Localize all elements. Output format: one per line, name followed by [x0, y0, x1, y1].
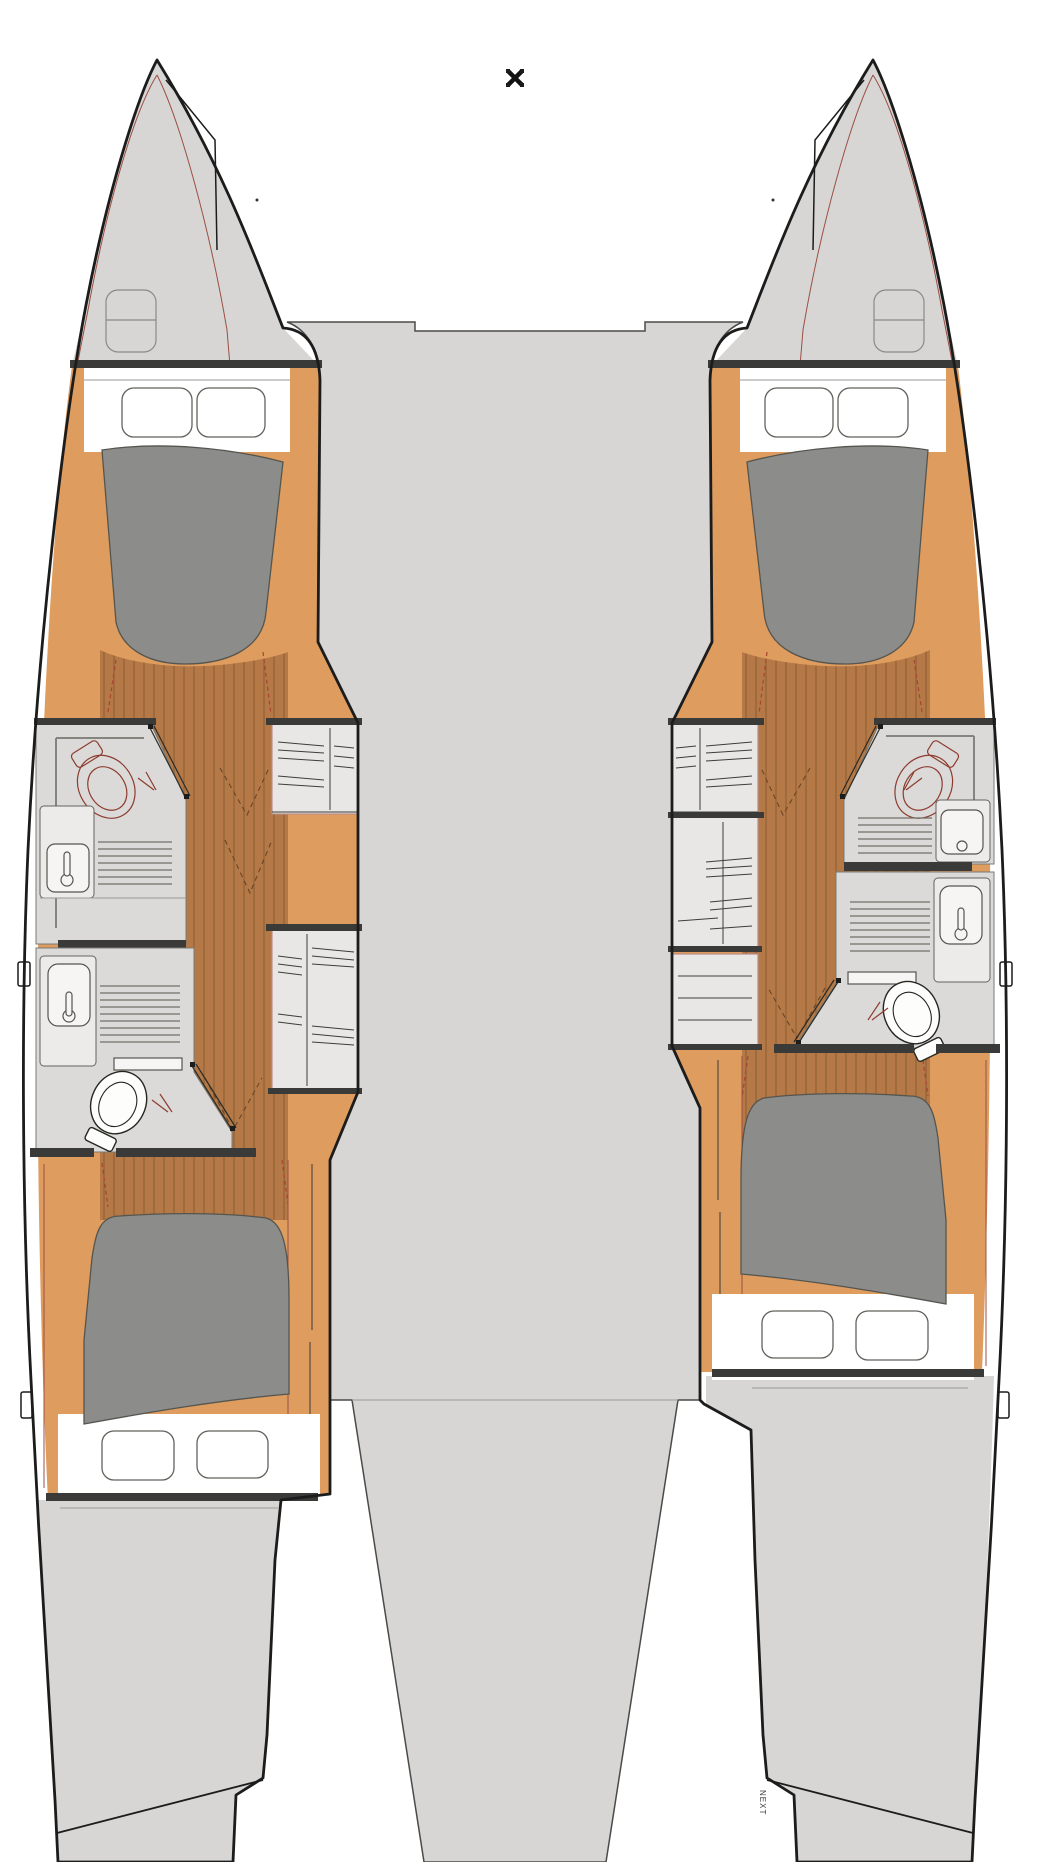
port-aft-bulkhead-right [116, 1148, 256, 1157]
port-forward-pillow-right [197, 388, 265, 437]
starboard-hull-cleat-2 [998, 1392, 1009, 1418]
port-wardrobe-1 [272, 722, 358, 814]
port-wardrobe-2 [272, 928, 358, 1090]
port-aft-bulkhead-left [30, 1148, 94, 1157]
starboard-forward-faucet [957, 841, 967, 851]
starboard-cabinet [672, 954, 758, 1046]
starboard-forward-bulkhead [708, 360, 960, 368]
port-aft-pillow-right [197, 1431, 268, 1478]
starboard-heads-divider [844, 862, 972, 871]
starboard-aft-cabin-bulkhead [712, 1369, 984, 1377]
starboard-wardrobe-2 [672, 816, 758, 950]
mast-marker-icon [506, 69, 524, 87]
port-forward-head-wall [34, 718, 156, 725]
door-hinge [878, 724, 883, 729]
door-hinge [836, 978, 841, 983]
port-wardrobe-2-wall [266, 924, 362, 931]
starboard-wardrobe-2-wall [668, 812, 764, 818]
starboard-wardrobe-1-wall [668, 718, 764, 725]
port-wardrobe-2-base [268, 1088, 362, 1094]
starboard-aft-berth [712, 1294, 974, 1380]
port-aft-cabin-bulkhead [46, 1493, 318, 1501]
door-hinge [184, 794, 189, 799]
port-forward-bulkhead [70, 360, 322, 368]
port-aft-pillow-left [102, 1431, 174, 1480]
port-aft-mattress [84, 1214, 289, 1424]
catamaran-floor-plan: NEXT [0, 0, 1064, 1862]
port-forward-pillow-left [122, 388, 192, 437]
door-hinge [148, 724, 153, 729]
port-hull-cleat-2 [21, 1392, 32, 1418]
port-deck-fitting-dot [256, 199, 259, 202]
port-aft-shower-shelf [114, 1058, 182, 1070]
starboard-wardrobes [668, 718, 764, 1050]
port-aft-faucet-handle [66, 992, 72, 1016]
starboard-deck-fitting-dot [772, 199, 775, 202]
starboard-wardrobe-2-base [668, 946, 762, 952]
door-hinge [230, 1126, 235, 1131]
next-label: NEXT [758, 1790, 767, 1815]
starboard-cabinet-base [668, 1044, 762, 1050]
starboard-aft-bulkhead-right [936, 1044, 1000, 1053]
starboard-forward-head-wall [874, 718, 996, 725]
starboard-aft-pillow-right [856, 1311, 928, 1360]
port-aft-berth [58, 1414, 320, 1500]
port-wardrobe-1-wall [266, 718, 362, 725]
starboard-forward-pillow-left [765, 388, 833, 437]
starboard-forward-pillow-right [838, 388, 908, 437]
starboard-stern-deck [706, 1376, 994, 1862]
starboard-aft-pillow-left [762, 1311, 833, 1358]
port-forward-mattress [102, 446, 283, 664]
starboard-forward-mattress [747, 446, 928, 664]
floor-plan-svg: NEXT [0, 0, 1064, 1862]
starboard-aft-bulkhead-left [774, 1044, 914, 1053]
starboard-aft-faucet-handle [958, 908, 964, 930]
starboard-aft-mattress [741, 1094, 946, 1304]
starboard-wardrobe-1 [672, 722, 758, 814]
port-forward-faucet-handle [64, 852, 70, 876]
door-hinge [190, 1062, 195, 1067]
door-hinge [840, 794, 845, 799]
